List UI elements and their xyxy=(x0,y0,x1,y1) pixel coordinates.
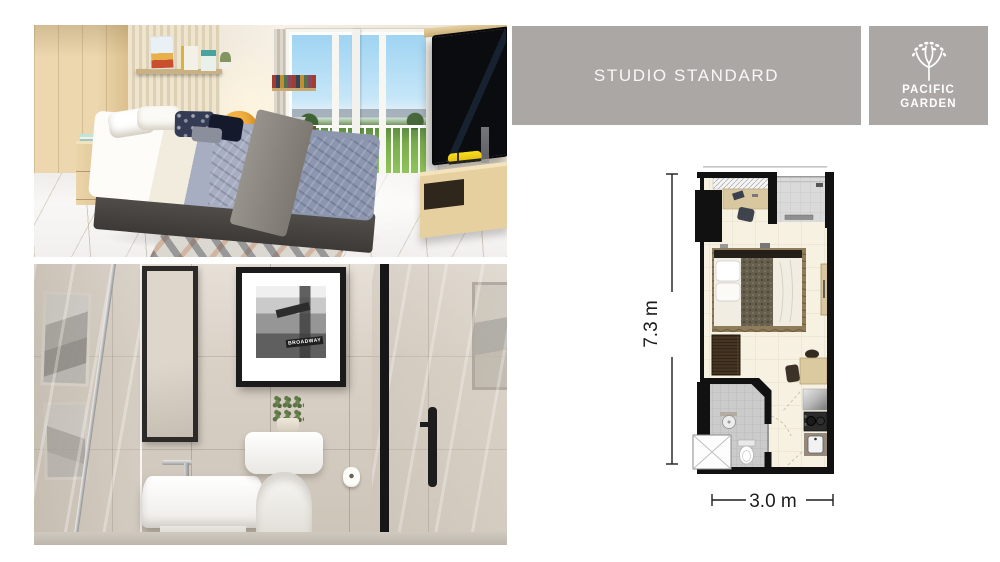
tv-console xyxy=(420,162,507,239)
poster-art xyxy=(149,36,174,70)
shower-glass-panel xyxy=(34,264,142,545)
city-photo: BROADWAY xyxy=(256,286,326,358)
door-handle xyxy=(428,407,437,487)
tree-icon xyxy=(908,40,950,82)
ac-unit xyxy=(693,435,731,469)
section-title: STUDIO STANDARD xyxy=(594,66,779,86)
book-shelf xyxy=(272,75,316,91)
brand-name-line2: GARDEN xyxy=(900,98,956,112)
shower-door-frame xyxy=(380,264,389,545)
brand-name-line1: PACIFIC xyxy=(900,84,956,98)
plant-pot xyxy=(277,418,299,433)
floorplan: 7.3 m 3.0 m xyxy=(640,152,852,514)
bed xyxy=(85,105,387,256)
balcony-slab-edge xyxy=(703,166,827,168)
shelf-plant xyxy=(220,52,231,69)
toilet-tank xyxy=(245,432,323,474)
television xyxy=(432,26,507,165)
toilet-paper-roll xyxy=(343,467,360,487)
entry-foyer xyxy=(777,176,825,222)
width-dimension-label: 3.0 m xyxy=(749,491,797,512)
mirror xyxy=(142,266,198,442)
bed-area xyxy=(712,243,806,332)
kitchen-area xyxy=(803,389,827,456)
bedroom-photo xyxy=(34,25,507,257)
brand-name: PACIFIC GARDEN xyxy=(900,84,956,112)
door-handle-mount xyxy=(420,422,430,427)
poster-art xyxy=(201,50,216,71)
floorplan-svg: 7.3 m 3.0 m xyxy=(640,152,852,514)
street-sign xyxy=(276,302,311,318)
console-niche xyxy=(424,179,464,210)
section-header-bar: STUDIO STANDARD xyxy=(512,26,861,125)
glass-vase xyxy=(481,127,489,163)
broadway-sign-text: BROADWAY xyxy=(286,336,324,348)
bathroom-photo: BROADWAY xyxy=(34,264,507,545)
height-dimension-label: 7.3 m xyxy=(641,300,662,348)
shower-door-glass xyxy=(372,264,507,545)
brand-logo-box: PACIFIC GARDEN xyxy=(869,26,988,125)
poster-art xyxy=(181,46,198,70)
brochure-slide: BROADWAY STUDIO STANDARD xyxy=(0,0,1000,562)
pillow xyxy=(191,126,222,144)
sink-basin xyxy=(142,476,264,528)
bathroom-floor xyxy=(34,532,507,545)
broadway-picture-frame: BROADWAY xyxy=(236,267,346,387)
wardrobe xyxy=(712,335,740,375)
